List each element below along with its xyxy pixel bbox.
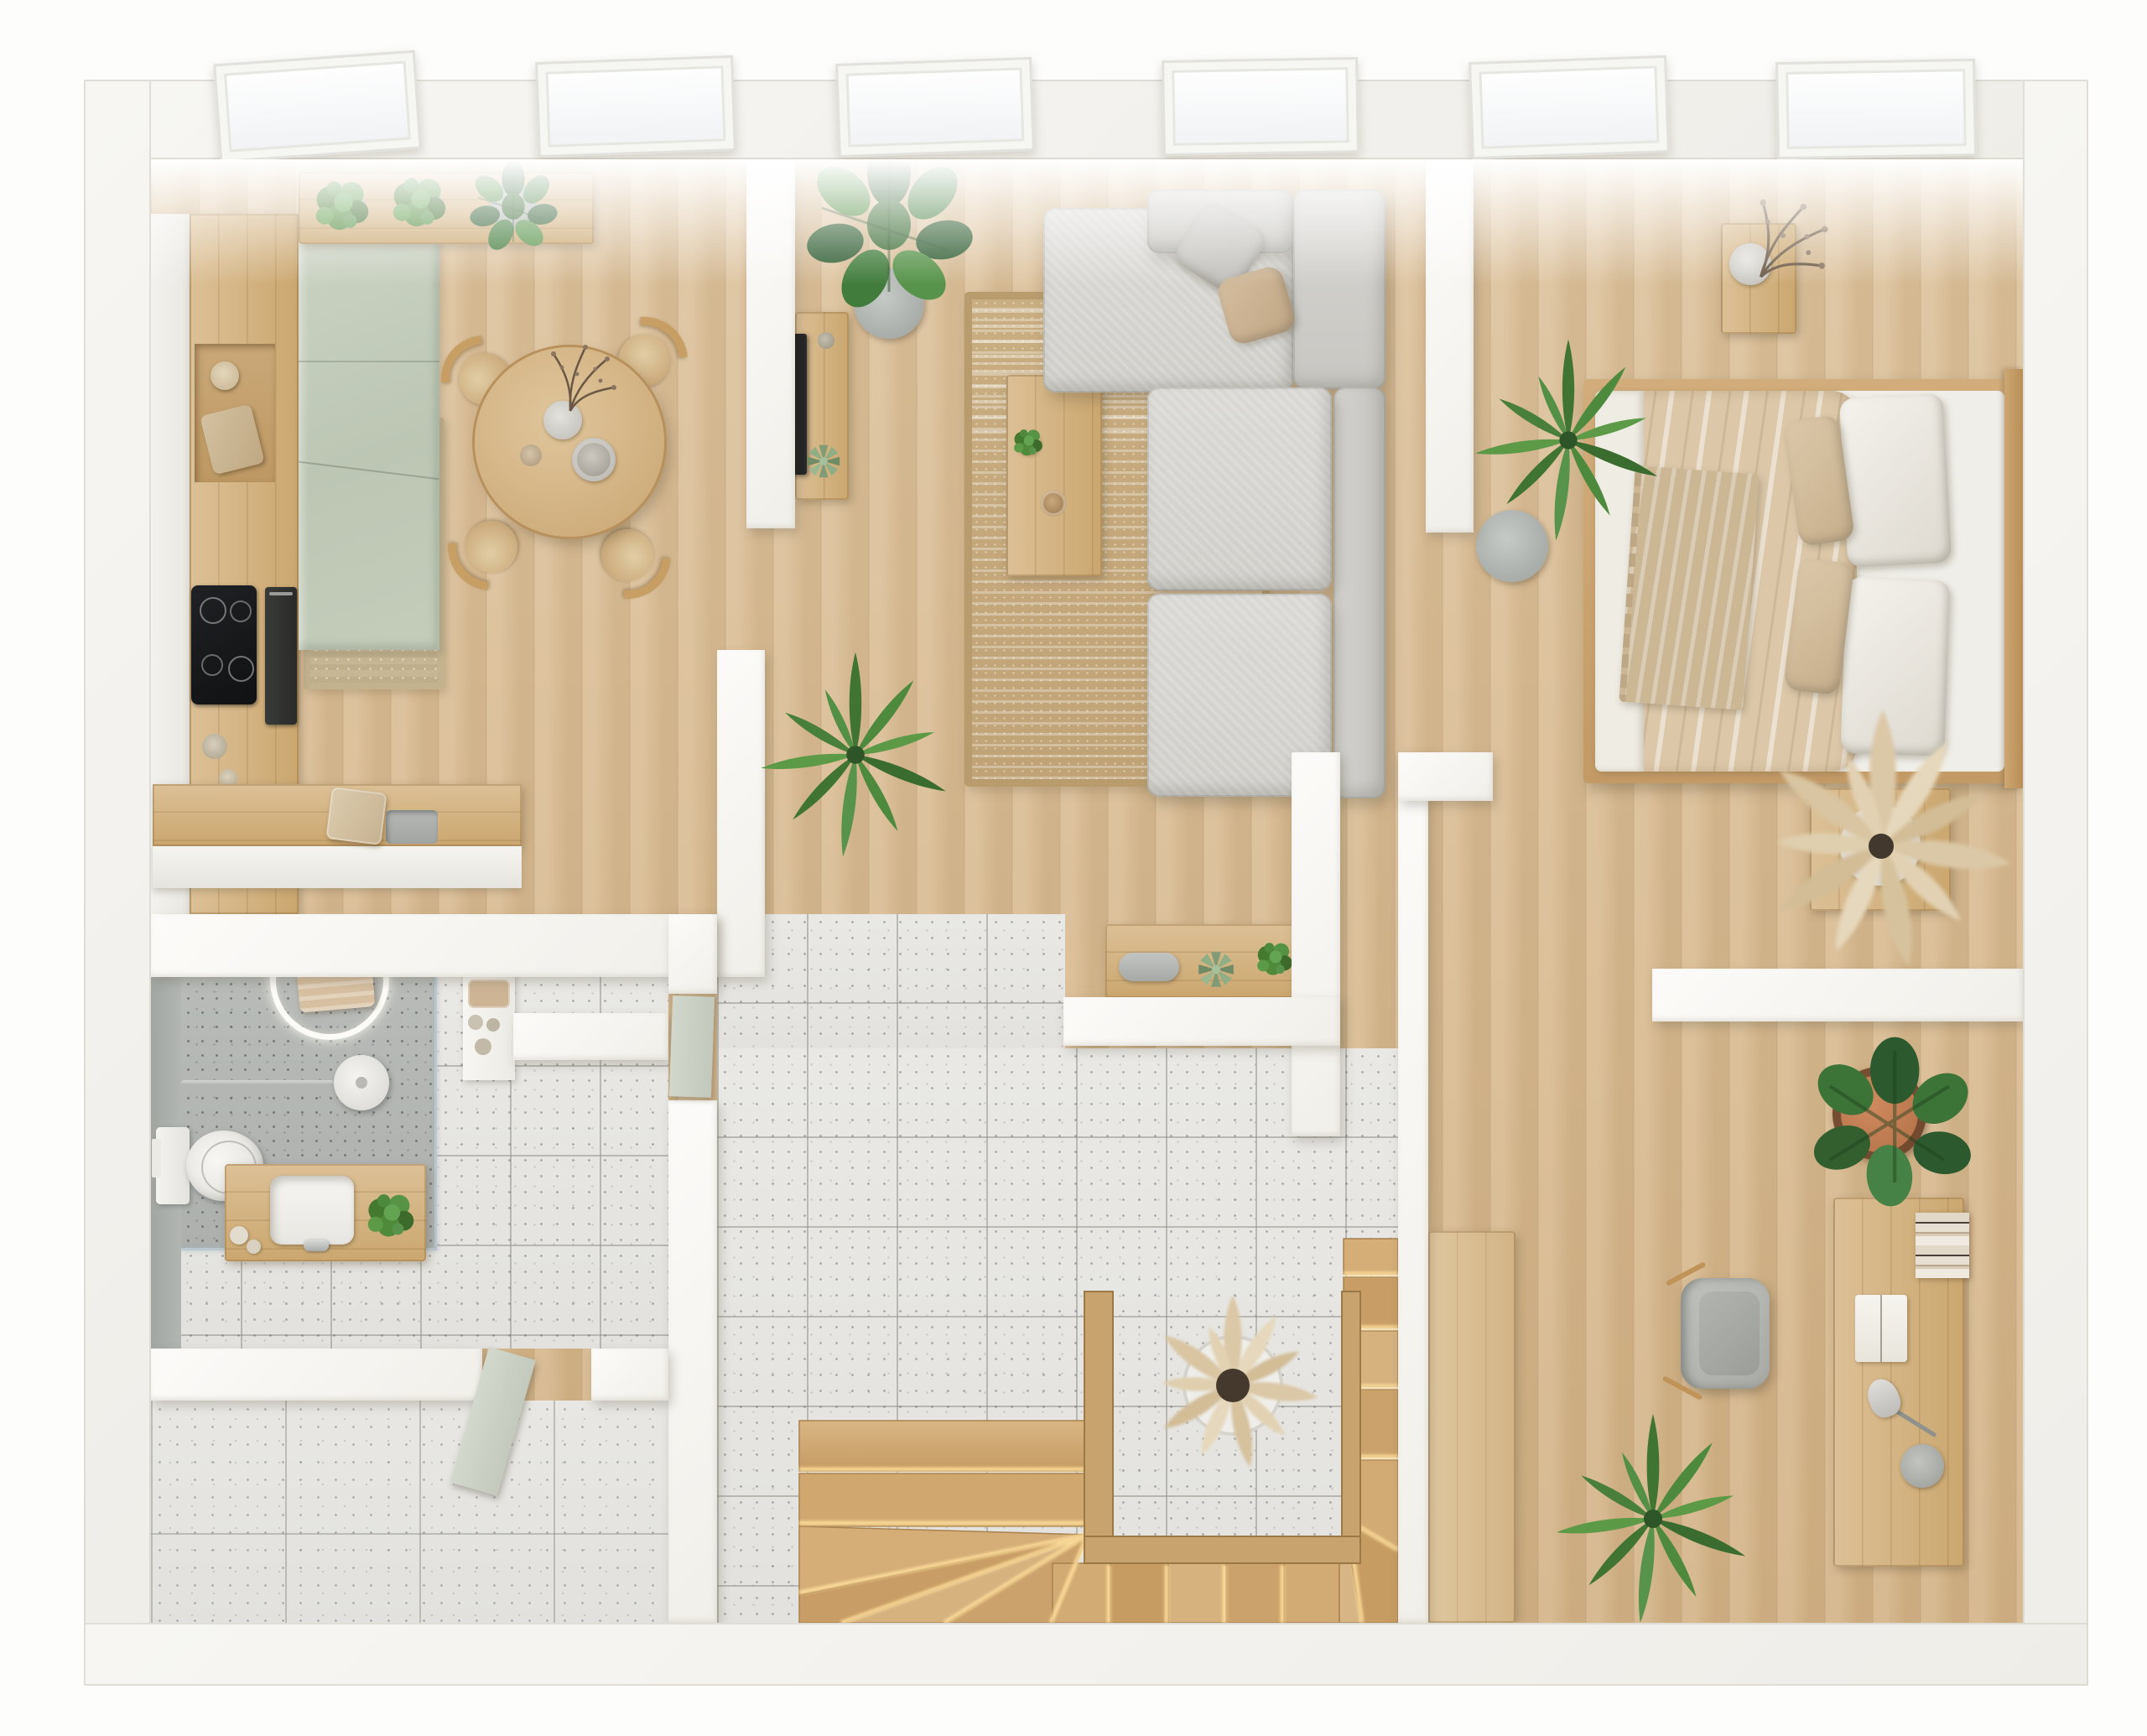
desk-lamp-base [1900, 1444, 1944, 1488]
sofa-seat-cushion [1147, 387, 1332, 590]
wall-bathroom-entry-split-left [151, 1349, 482, 1401]
bedroom-palm [1459, 331, 1677, 549]
shower-glass-vertical [434, 977, 437, 1250]
skylight-window [1469, 55, 1670, 159]
coffee-table-bowl [1040, 490, 1067, 517]
shelf-plant-basil [465, 158, 562, 255]
hob-burner [230, 600, 252, 622]
wall-hall-left-of-door [1292, 752, 1340, 1136]
shelf-bottle [486, 1018, 500, 1032]
dining-palm [745, 644, 966, 865]
vanity-plant [356, 1181, 426, 1251]
sofa-back-right [1333, 387, 1385, 798]
shelf-bottle [475, 1038, 491, 1055]
pampas-vase-center [1869, 834, 1894, 859]
desk-books [1916, 1213, 1969, 1278]
oven-handle [269, 592, 293, 595]
wall-bathroom-right-lower [668, 1100, 717, 1623]
sage-cabinet-panel [299, 214, 439, 650]
vanity-sink [270, 1176, 354, 1245]
skylight-window [535, 55, 736, 158]
hob-burner [201, 654, 223, 676]
skylight-window [213, 50, 422, 164]
counter-bowl [202, 734, 227, 759]
fiddle-leaf-fig [797, 133, 981, 317]
outer-wall-right [2023, 80, 2088, 1686]
island-front [153, 846, 522, 888]
bed-pillow-white [1839, 393, 1952, 568]
shelf-bottle [468, 1015, 483, 1030]
wall-bathroom-right-upper [668, 914, 717, 994]
shelf-towel [468, 980, 510, 1008]
hob-burner [200, 597, 226, 624]
shower-rail [181, 1080, 334, 1085]
shelf-plant [302, 166, 382, 247]
coffee-table-plant [1006, 421, 1050, 465]
wall-console-back [1063, 997, 1340, 1046]
table-bowl-stack [572, 438, 616, 481]
office-palm [1540, 1406, 1766, 1632]
shelf-plant [379, 163, 460, 243]
sofa-corner [1293, 190, 1385, 389]
skylight-window [1162, 57, 1359, 156]
console-succulent [1194, 948, 1238, 991]
wall-stair-right [1398, 752, 1428, 1623]
hob-burner [228, 656, 254, 682]
table-vase-branches [520, 335, 621, 419]
console-speaker [1119, 953, 1179, 981]
outer-wall-left [84, 80, 151, 1686]
skylight-window [835, 57, 1035, 158]
wall-dining-living [746, 159, 795, 528]
entry-room-floor [151, 1401, 668, 1623]
office-chair-cushion [1699, 1292, 1760, 1375]
island-sink-tray [386, 810, 438, 844]
built-in-oven [265, 587, 297, 725]
toilet-tank [156, 1127, 190, 1204]
bathroom-door-leaf [669, 995, 715, 1098]
tv-succulent [803, 441, 844, 481]
staircase [788, 1201, 1401, 1623]
coffee-table [1006, 375, 1102, 576]
vanity-faucet [304, 1240, 329, 1251]
wall-bedroom-office [1652, 969, 2023, 1021]
shower-head-center [356, 1077, 367, 1089]
tv-deco-stone [818, 332, 834, 349]
island-towel [325, 787, 387, 845]
flush-plate [152, 1139, 161, 1177]
desk-notebook-spine [1880, 1295, 1882, 1362]
wall-stair-right-cap [1398, 752, 1493, 801]
wall-bathroom-top [151, 914, 717, 977]
outer-wall-bottom [84, 1623, 2088, 1686]
wall-living-bedroom [1426, 159, 1474, 533]
office-monstera [1795, 1025, 1988, 1218]
skylight-window [1775, 59, 1977, 159]
paper-towel-roll [211, 361, 239, 390]
wall-bathroom-entry-split-right [591, 1349, 668, 1401]
table-small-bowl [520, 444, 542, 466]
soap-pebble [230, 1226, 248, 1245]
floor-plan-stage [0, 0, 2147, 1736]
sage-panel-seam [299, 361, 439, 362]
soap-pebble [247, 1240, 261, 1254]
hallway-floor-upper [717, 914, 1065, 1050]
office-wardrobe [1428, 1231, 1515, 1623]
wall-bathroom-shelf-stub [513, 1013, 668, 1060]
